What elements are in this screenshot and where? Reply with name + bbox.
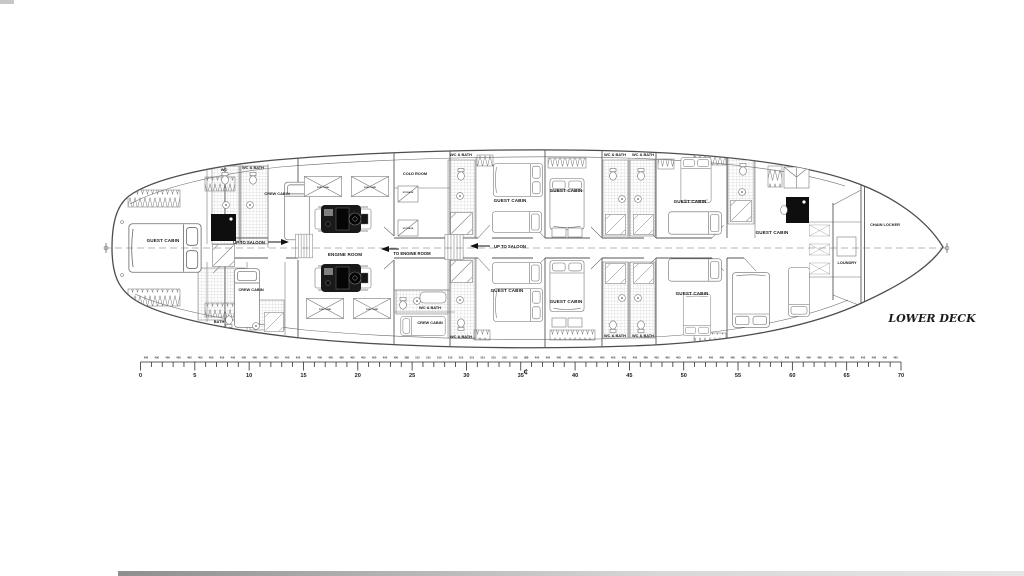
label-chain-locker: CHAIN LOCKER	[870, 222, 900, 227]
label-crew-cabin-top: CREW CABIN	[264, 191, 289, 196]
svg-text:60: 60	[789, 373, 795, 379]
svg-text:400: 400	[220, 356, 225, 360]
svg-text:0: 0	[139, 373, 142, 379]
deck-plan-drawing: FUEL TANK FUEL TANK FUEL TANK FUEL TANK	[0, 0, 1024, 576]
label-guest-cabin-vip: GUEST CABIN	[756, 230, 789, 235]
svg-text:400: 400	[839, 356, 844, 360]
label-crew-cabin-bottom: CREW CABIN	[238, 287, 263, 292]
label-wc-bath: WC & BATH	[632, 333, 654, 338]
svg-text:20: 20	[355, 373, 361, 379]
washing-machine-icon	[837, 237, 856, 256]
svg-text:400: 400	[589, 356, 594, 360]
label-storage: STORAGE	[403, 191, 414, 194]
svg-text:400: 400	[633, 356, 638, 360]
svg-text:30: 30	[463, 373, 469, 379]
svg-text:400: 400	[817, 356, 822, 360]
svg-text:400: 400	[231, 356, 236, 360]
label-wc-bath: WC & BATH	[604, 152, 626, 157]
svg-text:40: 40	[572, 373, 578, 379]
svg-text:400: 400	[535, 356, 540, 360]
fuel-tank-label: FUEL TANK	[317, 186, 330, 189]
svg-text:400: 400	[350, 356, 355, 360]
label-guest-cabin-aft: GUEST CABIN	[147, 238, 180, 243]
label-up-to-saloon-aft: UP TO SALOON	[233, 240, 265, 245]
svg-text:515: 515	[448, 356, 453, 360]
label-bath: BATH	[214, 319, 225, 324]
label-guest-cabin: GUEST CABIN	[550, 299, 583, 304]
label-guest-cabin: GUEST CABIN	[494, 198, 527, 203]
svg-text:400: 400	[546, 356, 551, 360]
label-crew-cabin: CREW CABIN	[417, 320, 442, 325]
label-guest-cabin: GUEST CABIN	[491, 288, 524, 293]
label-wc-bath: WC & BATH	[419, 305, 441, 310]
svg-text:55: 55	[735, 373, 741, 379]
svg-text:400: 400	[643, 356, 648, 360]
fuel-tank-label: FUEL TANK	[364, 186, 377, 189]
svg-text:400: 400	[339, 356, 344, 360]
label-to-engine-room: TO ENGINE ROOM	[393, 251, 431, 256]
svg-text:400: 400	[198, 356, 203, 360]
fuel-tank-label: FUEL TANK	[319, 308, 332, 311]
svg-text:400: 400	[296, 356, 301, 360]
svg-text:400: 400	[719, 356, 724, 360]
svg-text:515: 515	[437, 356, 442, 360]
label-wc: WC	[221, 167, 228, 172]
label-engine-room: ENGINE ROOM	[328, 252, 362, 257]
svg-text:400: 400	[806, 356, 811, 360]
label-wc-bath: WC & BATH	[604, 333, 626, 338]
svg-text:400: 400	[165, 356, 170, 360]
svg-text:400: 400	[187, 356, 192, 360]
svg-text:15: 15	[300, 373, 306, 379]
scale-ruler: 4004004004004004004004004004004004004004…	[139, 356, 904, 380]
svg-text:400: 400	[611, 356, 616, 360]
svg-text:400: 400	[209, 356, 214, 360]
svg-text:10: 10	[246, 373, 252, 379]
svg-text:515: 515	[459, 356, 464, 360]
label-cold-room: COLD ROOM	[403, 171, 427, 176]
svg-text:515: 515	[480, 356, 485, 360]
svg-text:515: 515	[491, 356, 496, 360]
svg-text:400: 400	[263, 356, 268, 360]
deck-plan-page: FUEL TANK FUEL TANK FUEL TANK FUEL TANK	[0, 0, 1024, 576]
svg-text:25: 25	[409, 373, 415, 379]
label-guest-cabin: GUEST CABIN	[550, 188, 583, 193]
svg-text:515: 515	[426, 356, 431, 360]
label-wc-bath: WC & BATH	[450, 334, 472, 339]
svg-text:400: 400	[676, 356, 681, 360]
svg-text:400: 400	[372, 356, 377, 360]
svg-text:515: 515	[470, 356, 475, 360]
svg-text:400: 400	[394, 356, 399, 360]
svg-text:400: 400	[622, 356, 627, 360]
svg-text:400: 400	[328, 356, 333, 360]
deck-title: LOWER DECK	[887, 312, 976, 325]
svg-text:400: 400	[882, 356, 887, 360]
svg-text:400: 400	[709, 356, 714, 360]
svg-text:400: 400	[144, 356, 149, 360]
svg-text:400: 400	[730, 356, 735, 360]
svg-text:515: 515	[502, 356, 507, 360]
svg-text:400: 400	[785, 356, 790, 360]
svg-text:400: 400	[861, 356, 866, 360]
svg-text:5: 5	[193, 373, 196, 379]
svg-text:400: 400	[893, 356, 898, 360]
label-wc-bath: WC & BATH	[242, 165, 264, 170]
svg-text:400: 400	[872, 356, 877, 360]
svg-text:388: 388	[404, 356, 409, 360]
svg-text:65: 65	[844, 373, 850, 379]
svg-text:₵: ₵	[523, 368, 528, 376]
svg-text:400: 400	[361, 356, 366, 360]
svg-text:400: 400	[318, 356, 323, 360]
svg-text:400: 400	[567, 356, 572, 360]
svg-text:400: 400	[850, 356, 855, 360]
svg-text:400: 400	[600, 356, 605, 360]
label-wc-bath: WC & BATH	[632, 152, 654, 157]
svg-text:400: 400	[665, 356, 670, 360]
svg-text:400: 400	[285, 356, 290, 360]
svg-text:388: 388	[524, 356, 529, 360]
svg-text:50: 50	[681, 373, 687, 379]
svg-text:400: 400	[155, 356, 160, 360]
label-storage: STORAGE	[403, 227, 414, 230]
svg-text:400: 400	[307, 356, 312, 360]
svg-text:400: 400	[176, 356, 181, 360]
scan-artifact-bottom-strip	[118, 571, 1024, 576]
svg-text:515: 515	[513, 356, 518, 360]
svg-text:515: 515	[415, 356, 420, 360]
svg-text:400: 400	[828, 356, 833, 360]
svg-text:70: 70	[898, 373, 904, 379]
svg-text:45: 45	[626, 373, 632, 379]
svg-text:400: 400	[763, 356, 768, 360]
svg-text:400: 400	[741, 356, 746, 360]
label-wc-bath: WC & BATH	[450, 152, 472, 157]
svg-text:400: 400	[252, 356, 257, 360]
svg-text:400: 400	[654, 356, 659, 360]
svg-text:400: 400	[774, 356, 779, 360]
svg-text:400: 400	[796, 356, 801, 360]
label-guest-cabin: GUEST CABIN	[676, 291, 709, 296]
svg-text:400: 400	[241, 356, 246, 360]
fuel-tank-label: FUEL TANK	[366, 308, 379, 311]
svg-text:400: 400	[578, 356, 583, 360]
label-up-to-saloon-mid: UP TO SALOON	[494, 244, 526, 249]
svg-text:400: 400	[274, 356, 279, 360]
svg-text:400: 400	[752, 356, 757, 360]
svg-text:400: 400	[698, 356, 703, 360]
svg-text:400: 400	[557, 356, 562, 360]
svg-text:400: 400	[687, 356, 692, 360]
label-laundry: LOUNDRY	[837, 260, 856, 265]
svg-text:400: 400	[383, 356, 388, 360]
label-guest-cabin: GUEST CABIN	[674, 199, 707, 204]
